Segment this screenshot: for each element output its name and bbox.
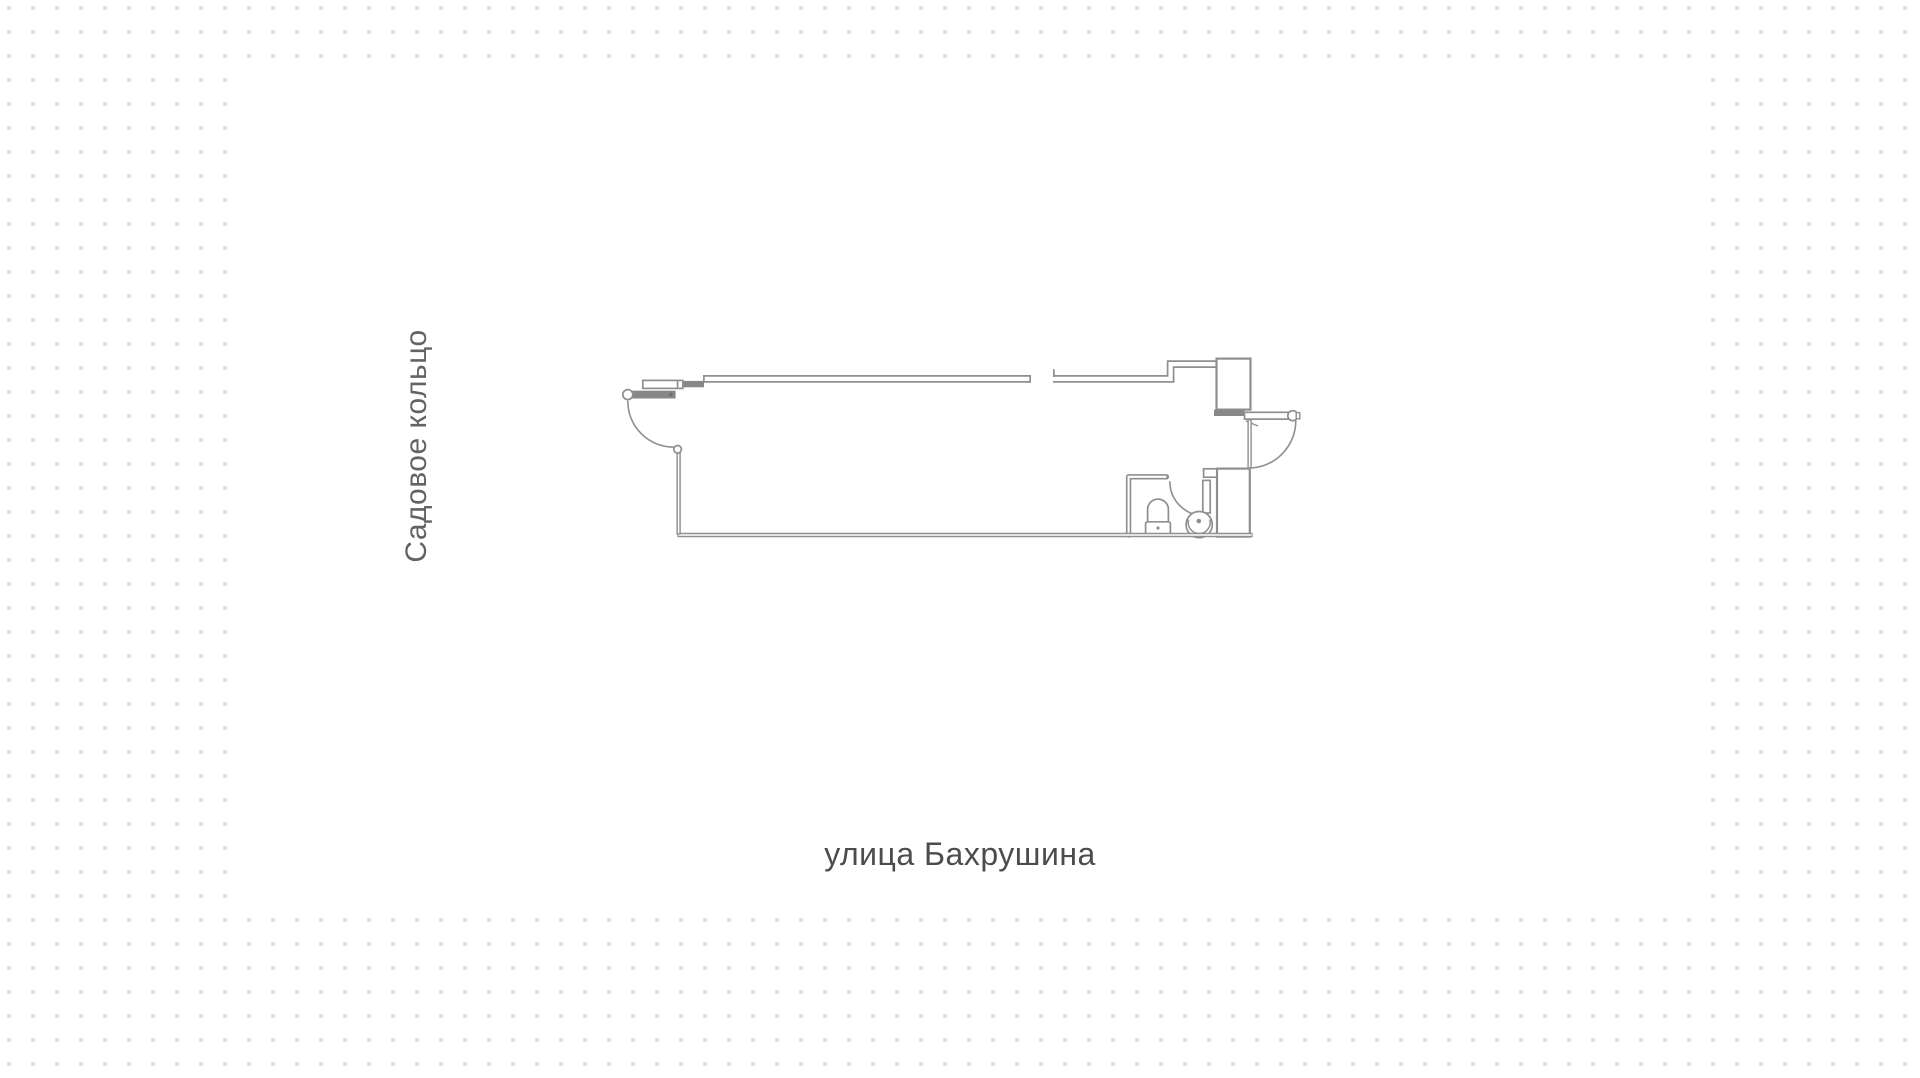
door-leaf: [1245, 412, 1292, 419]
door-hinge: [623, 390, 633, 400]
door-leaf: [1203, 480, 1210, 513]
lower-shaft-notch: [1204, 469, 1217, 477]
map-canvas: Садовое кольцо: [0, 0, 1920, 1078]
entrance-door-right: [1214, 410, 1300, 469]
door-threshold: [1214, 410, 1245, 416]
door-swing-arc: [1170, 481, 1205, 516]
toilet-icon: [1146, 499, 1171, 534]
street-label-sadovoe-koltso: Садовое кольцо: [398, 326, 436, 566]
door-swing-arc: [628, 401, 674, 447]
floor-plan: [600, 340, 1320, 560]
top-wall: [703, 361, 1216, 383]
bathroom-door: [1170, 480, 1210, 515]
door-stop: [674, 446, 682, 454]
upper-shaft: [1217, 359, 1251, 410]
lower-shaft: [1217, 469, 1250, 537]
wall-stub: [683, 381, 705, 387]
street-label-bakhrushina: улица Бахрушина: [810, 836, 1110, 873]
entrance-door-left: [623, 380, 704, 453]
door-swing-arc: [1248, 421, 1296, 469]
